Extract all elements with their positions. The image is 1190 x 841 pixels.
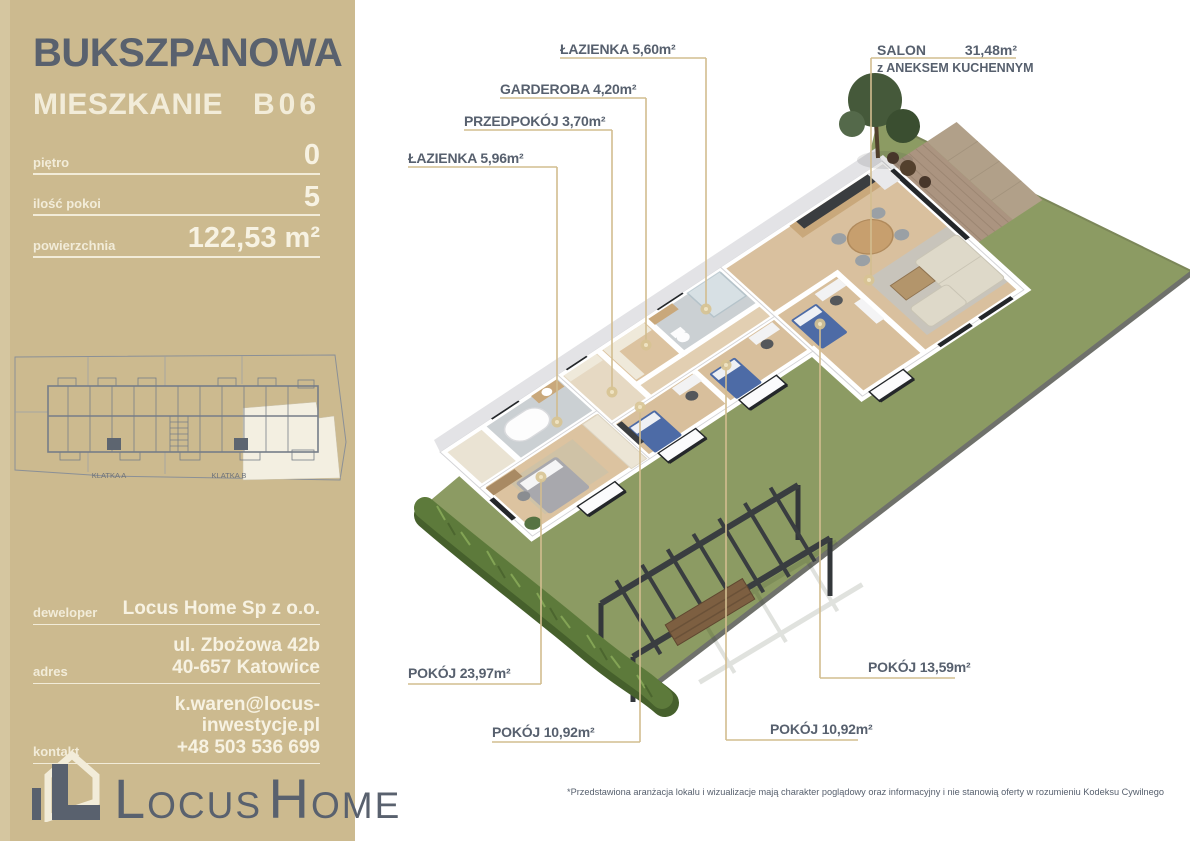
room-label-pokoj-1359: POKÓJ 13,59m² xyxy=(868,659,970,675)
staircase-a xyxy=(107,438,121,450)
salon-name: SALON xyxy=(877,42,926,58)
klatka-b-label: KLATKA B xyxy=(212,471,247,480)
spec-label: piętro xyxy=(33,155,69,170)
legal-disclaimer: *Przedstawiona aranżacja lokalu i wizual… xyxy=(567,787,1164,797)
unit-number: B06 xyxy=(253,88,320,122)
project-name: BUKSZPANOWA xyxy=(33,33,320,73)
room-label-salon: SALON 31,48m² z ANEKSEM KUCHENNYM xyxy=(877,42,1017,75)
room-label-pokoj-1092-a: POKÓJ 10,92m² xyxy=(492,724,594,740)
spec-value: 0 xyxy=(304,142,320,170)
room-label-lazienka-560: ŁAZIENKA 5,60m² xyxy=(560,41,676,57)
building-location-plan: KLATKA A KLATKA B xyxy=(10,350,355,495)
room-label-pokoj-1092-b: POKÓJ 10,92m² xyxy=(770,721,872,737)
spec-label: ilość pokoi xyxy=(33,196,101,211)
logo-ome: OME xyxy=(311,785,401,826)
locus-home-logo: LOCUS HOME xyxy=(30,746,401,822)
developer-row: deweloper Locus Home Sp z o.o. xyxy=(33,598,320,625)
staircase-b xyxy=(234,438,248,450)
room-label-pokoj-2397: POKÓJ 23,97m² xyxy=(408,665,510,681)
sidebar: BUKSZPANOWA MIESZKANIE B06 piętro 0 iloś… xyxy=(0,0,355,841)
room-label-lazienka-596: ŁAZIENKA 5,96m² xyxy=(408,150,524,166)
unit-label: MIESZKANIE xyxy=(33,88,223,122)
spec-value: 5 xyxy=(304,184,320,212)
room-label-przedpokoj: PRZEDPOKÓJ 3,70m² xyxy=(464,113,605,129)
contact-email: k.waren@locus-inwestycje.pl xyxy=(79,694,320,738)
logo-ocus: OCUS xyxy=(147,785,262,826)
developer-name: Locus Home Sp z o.o. xyxy=(123,598,320,620)
locus-home-logo-icon xyxy=(30,746,110,822)
spec-value: 122,53 m² xyxy=(188,225,320,253)
developer-label: deweloper xyxy=(33,605,97,620)
spec-row-area: powierzchnia 122,53 m² xyxy=(33,225,320,258)
unit-title: MIESZKANIE B06 xyxy=(33,88,320,122)
salon-subtitle: z ANEKSEM KUCHENNYM xyxy=(877,61,1017,75)
address-label: adres xyxy=(33,664,68,679)
brochure-page: ŁAZIENKA 5,60m² GARDEROBA 4,20m² PRZEDPO… xyxy=(0,0,1190,841)
logo-h: H xyxy=(269,767,311,830)
address-line-2: 40-657 Katowice xyxy=(172,657,320,679)
logo-wordmark: LOCUS HOME xyxy=(114,777,401,822)
salon-area: 31,48m² xyxy=(965,42,1017,58)
unit-highlight xyxy=(243,402,340,480)
address-line-1: ul. Zbożowa 42b xyxy=(172,635,320,657)
spec-label: powierzchnia xyxy=(33,238,115,253)
spec-row-rooms: ilość pokoi 5 xyxy=(33,184,320,217)
address-row: adres ul. Zbożowa 42b 40-657 Katowice xyxy=(33,635,320,684)
spec-list: piętro 0 ilość pokoi 5 powierzchnia 122,… xyxy=(33,142,320,258)
logo-l: L xyxy=(114,767,147,830)
room-label-garderoba: GARDEROBA 4,20m² xyxy=(500,81,636,97)
klatka-a-label: KLATKA A xyxy=(92,471,126,480)
spec-row-floor: piętro 0 xyxy=(33,142,320,175)
